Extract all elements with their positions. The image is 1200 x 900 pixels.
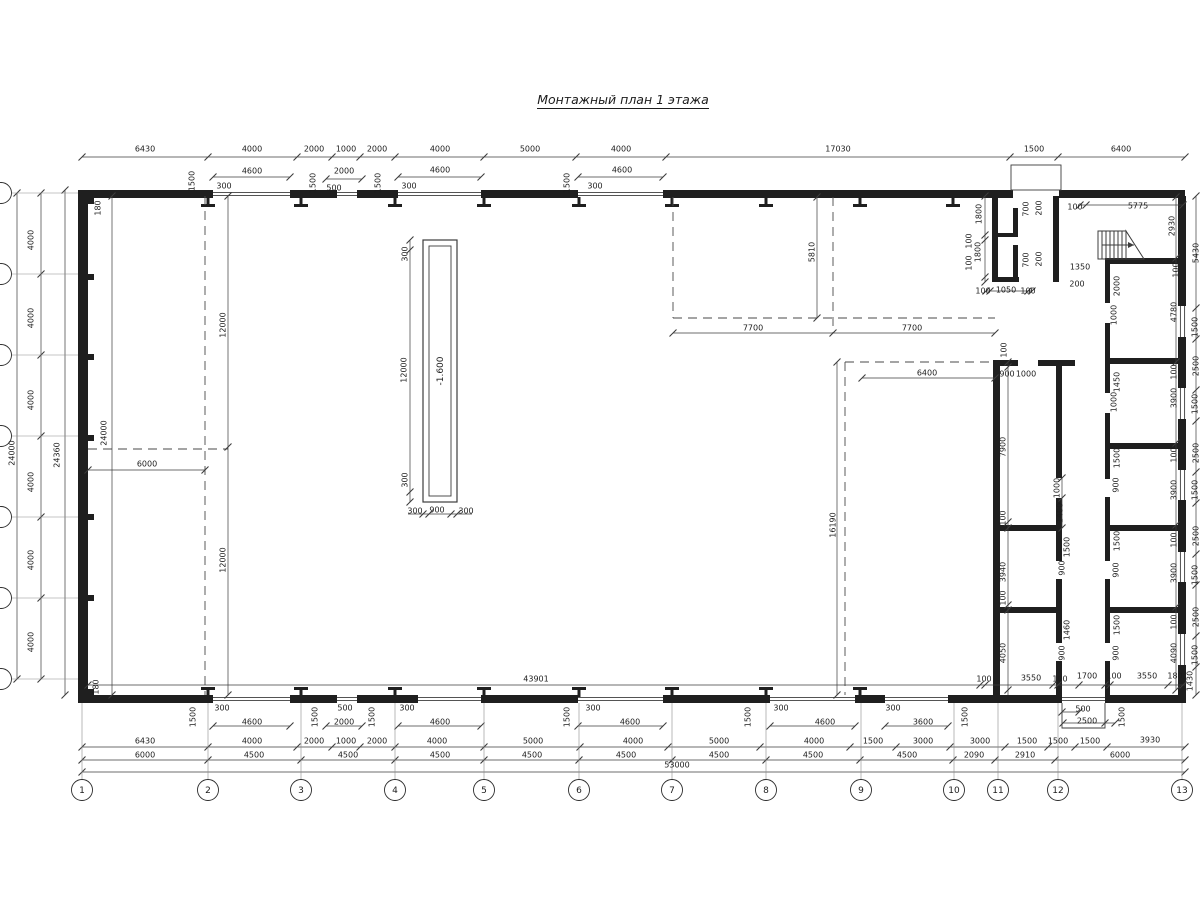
dim-label: 900 — [999, 370, 1014, 379]
drawing-sheet: Монтажный план 1 этажа -1.60012345678910… — [0, 0, 1200, 900]
dim-label: 1500 — [1113, 615, 1122, 635]
column-mark — [765, 688, 768, 697]
dim-label: 900 — [1058, 560, 1067, 575]
walls-layer — [78, 190, 1186, 703]
grid-bubble — [0, 588, 12, 609]
column-mark — [207, 688, 210, 697]
dim-label: 1500 — [1191, 480, 1200, 500]
dim-label: 700 — [1022, 201, 1031, 216]
dim-label: 2000 — [334, 718, 354, 727]
dim-label: 3550 — [1021, 674, 1041, 683]
wall-segment — [1013, 208, 1018, 235]
dim-label: 100 — [1170, 532, 1179, 547]
dim-label: 24000 — [100, 420, 109, 445]
pilaster-mark — [88, 435, 94, 441]
wall-segment — [82, 695, 213, 703]
dim-label: 500 — [1075, 705, 1090, 714]
dim-label: 1460 — [1063, 620, 1072, 640]
dim-label: 100 — [1170, 614, 1179, 629]
dim-label: 43901 — [523, 675, 548, 684]
dim-label: 6400 — [917, 369, 937, 378]
wall-segment — [481, 695, 578, 703]
dim-label: 300 — [773, 704, 788, 713]
windows-layer — [213, 165, 1185, 728]
dim-label: 4600 — [612, 166, 632, 175]
dim-label: 2000 — [367, 145, 387, 154]
dim-label: 1000 — [1110, 305, 1119, 325]
dim-label: 2910 — [1015, 751, 1035, 760]
column-mark — [671, 688, 674, 697]
grid-bubble-label: 13 — [1176, 786, 1187, 796]
dim-label: 1350 — [1070, 263, 1090, 272]
wall-segment — [992, 277, 1019, 282]
dim-label: 100 — [1106, 672, 1121, 681]
column-mark — [294, 204, 308, 207]
dim-label: 17030 — [825, 145, 850, 154]
dim-label: 500 — [337, 704, 352, 713]
dim-label: 100 — [975, 287, 990, 296]
dim-label: 4000 — [27, 308, 36, 328]
grid-bubble — [0, 345, 12, 366]
dim-label: 100 — [1067, 203, 1082, 212]
dim-label: 12000 — [400, 357, 409, 382]
dim-label: 6400 — [1111, 145, 1131, 154]
dim-label: 4000 — [27, 632, 36, 652]
floor-plan-canvas: -1.6001234567891011121364304000200010002… — [0, 0, 1200, 900]
dim-label: 4500 — [616, 751, 636, 760]
dim-label: 3900 — [1170, 563, 1179, 583]
dim-label: 4000 — [242, 737, 262, 746]
dim-label: 3000 — [970, 737, 990, 746]
dim-label: 1500 — [563, 173, 572, 193]
dim-label: 1500 — [1080, 737, 1100, 746]
dim-label: 1500 — [1113, 448, 1122, 468]
grid-bubble-label: 11 — [992, 786, 1003, 796]
dim-label: 5000 — [523, 737, 543, 746]
dim-label: 1500 — [311, 707, 320, 727]
wall-segment — [1105, 262, 1110, 303]
wall-segment — [1053, 196, 1059, 282]
dim-label: 900 — [429, 506, 444, 515]
dim-label: 1800 — [974, 242, 983, 262]
dim-label: 200 — [1035, 200, 1044, 215]
dim-label: 1500 — [563, 707, 572, 727]
dim-label: 300 — [401, 246, 410, 261]
dim-label: 4500 — [522, 751, 542, 760]
dim-label: 3940 — [999, 562, 1008, 582]
dim-label: 4000 — [27, 390, 36, 410]
dim-label: 4600 — [430, 718, 450, 727]
stairs-icon — [1098, 231, 1144, 259]
dim-label: 7700 — [902, 324, 922, 333]
column-mark — [572, 204, 586, 207]
dim-label: 700 — [1022, 252, 1031, 267]
dim-label: 2500 — [1192, 607, 1200, 627]
dim-label: 1500 — [1017, 737, 1037, 746]
dim-label: 16190 — [829, 512, 838, 537]
dim-label: 1500 — [1113, 531, 1122, 551]
dim-label: 1050 — [996, 286, 1016, 295]
dim-label: 3600 — [913, 718, 933, 727]
dim-label: 5810 — [808, 242, 817, 262]
grid-bubble-label: 7 — [669, 786, 675, 796]
wall-segment — [1056, 360, 1062, 478]
dim-label: 4000 — [242, 145, 262, 154]
dim-label: 1500 — [374, 173, 383, 193]
dim-label: 2500 — [1192, 526, 1200, 546]
dim-label: 300 — [407, 507, 422, 516]
wall-segment — [948, 695, 1062, 703]
dim-label: 4000 — [27, 472, 36, 492]
pilaster-mark — [88, 595, 94, 601]
dim-label: 900 — [1058, 645, 1067, 660]
column-mark — [483, 688, 486, 697]
dim-label: 2930 — [1168, 216, 1177, 236]
dimension-lines-layer — [17, 157, 1196, 772]
dim-label: 5430 — [1192, 243, 1200, 263]
dim-label: 100 — [1052, 675, 1067, 684]
dim-label: 2000 — [304, 145, 324, 154]
wall-segment — [1105, 358, 1183, 364]
dim-label: 7700 — [743, 324, 763, 333]
column-mark — [300, 688, 303, 697]
grid-bubble-label: 1 — [79, 786, 85, 796]
dim-label: 1450 — [1113, 372, 1122, 392]
dim-label: 2500 — [1192, 443, 1200, 463]
dim-label: 24000 — [8, 440, 17, 465]
wall-segment — [1013, 245, 1018, 277]
dim-label: 1500 — [1048, 737, 1068, 746]
roof-protrusion — [1011, 165, 1061, 190]
dim-label: 12000 — [219, 547, 228, 572]
dim-label: 4780 — [1170, 302, 1179, 322]
dashed-lines-layer — [88, 196, 995, 695]
dim-label: 1500 — [309, 173, 318, 193]
dim-label: 4000 — [27, 550, 36, 570]
dim-label: 4500 — [803, 751, 823, 760]
wall-segment — [1105, 607, 1183, 613]
dim-label: 180 — [1167, 672, 1182, 681]
dim-label: 100 — [1170, 447, 1179, 462]
wall-segment — [1056, 579, 1062, 643]
dim-label: 1000 — [336, 145, 356, 154]
grid-bubble-label: 5 — [481, 786, 487, 796]
dim-label: 24360 — [53, 442, 62, 467]
grid-bubble-label: 12 — [1052, 786, 1063, 796]
dim-label: 4090 — [1170, 643, 1179, 663]
dim-label: 1400 — [1056, 503, 1065, 523]
dim-label: 300 — [216, 182, 231, 191]
dim-label: 3930 — [1140, 736, 1160, 745]
dim-label: 1700 — [1077, 672, 1097, 681]
dim-label: 3550 — [1137, 672, 1157, 681]
grid-bubble-label: 4 — [392, 786, 398, 796]
dim-label: 180 — [92, 679, 101, 694]
grid-bubble — [0, 507, 12, 528]
wall-segment — [1105, 525, 1183, 531]
dim-label: 200 — [1035, 251, 1044, 266]
dim-label: 2000 — [334, 167, 354, 176]
grid-bubble — [0, 264, 12, 285]
pilaster-mark — [88, 274, 94, 280]
dim-label: 300 — [399, 704, 414, 713]
dim-label: 1500 — [189, 707, 198, 727]
dim-label: 4050 — [999, 643, 1008, 663]
dim-label: 200 — [1069, 280, 1084, 289]
dim-label: 1500 — [188, 171, 197, 191]
dim-label: 100 — [1000, 342, 1009, 357]
dim-label: 100 — [1170, 364, 1179, 379]
wall-segment — [993, 607, 1062, 613]
column-mark — [394, 688, 397, 697]
wall-segment — [1105, 695, 1185, 703]
wall-segment — [663, 695, 770, 703]
dim-label: 4500 — [430, 751, 450, 760]
dim-label: 7900 — [999, 437, 1008, 457]
dim-label: 6000 — [1110, 751, 1130, 760]
dim-label: 2500 — [1077, 717, 1097, 726]
dim-label: 1000 — [1053, 478, 1062, 498]
dim-label: 300 — [585, 704, 600, 713]
column-mark — [578, 688, 581, 697]
dim-label: 1500 — [1024, 145, 1044, 154]
column-mark — [859, 688, 862, 697]
pilaster-mark — [88, 514, 94, 520]
dim-label: 4000 — [430, 145, 450, 154]
dim-label: 1430 — [1186, 671, 1195, 691]
dim-label: 300 — [885, 704, 900, 713]
dim-label: 6000 — [135, 751, 155, 760]
dim-label: 1800 — [975, 204, 984, 224]
dim-label: 4000 — [804, 737, 824, 746]
column-mark — [388, 204, 402, 207]
grid-bubble-label: 2 — [205, 786, 211, 796]
dim-label: 3000 — [913, 737, 933, 746]
dim-label: 4000 — [27, 230, 36, 250]
wall-segment — [1178, 196, 1186, 306]
dim-label: 1000 — [1110, 392, 1119, 412]
column-mark — [853, 204, 867, 207]
dim-label: 1000 — [336, 737, 356, 746]
column-mark — [946, 204, 960, 207]
dim-label: 2500 — [1192, 356, 1200, 376]
dim-label: 1500 — [1191, 317, 1200, 337]
dim-label: 300 — [458, 507, 473, 516]
dim-label: 300 — [214, 704, 229, 713]
dim-label: 500 — [326, 184, 341, 193]
dim-label: 1500 — [368, 707, 377, 727]
dim-label: 180 — [94, 200, 103, 215]
dim-label: 2000 — [1113, 276, 1122, 296]
grid-bubble-label: 8 — [763, 786, 769, 796]
dim-label: 900 — [1112, 645, 1121, 660]
dim-label: 1500 — [1118, 707, 1127, 727]
grid-bubble-label: 3 — [298, 786, 304, 796]
dim-label: 4500 — [244, 751, 264, 760]
dim-label: 5000 — [709, 737, 729, 746]
grid-bubble-label: 6 — [576, 786, 582, 796]
dim-label: 1500 — [1191, 394, 1200, 414]
dim-label: 2000 — [367, 737, 387, 746]
dim-label: 1500 — [961, 707, 970, 727]
dim-label: 4600 — [815, 718, 835, 727]
wall-segment — [663, 190, 1013, 198]
dim-label: 1500 — [1191, 565, 1200, 585]
dim-label: 100 — [1020, 287, 1035, 296]
dim-label: 100 — [999, 590, 1008, 605]
dim-label: 53000 — [664, 761, 689, 770]
dim-label: 100 — [965, 255, 974, 270]
grid-bubble-label: 9 — [858, 786, 864, 796]
dim-label: 300 — [401, 472, 410, 487]
dim-label: 1500 — [863, 737, 883, 746]
dim-label: 100 — [976, 675, 991, 684]
dim-label: 900 — [1112, 562, 1121, 577]
dim-label: 3900 — [1170, 388, 1179, 408]
column-mark — [665, 204, 679, 207]
dim-label: 4600 — [620, 718, 640, 727]
dim-label: 300 — [587, 182, 602, 191]
dim-label: 3900 — [1170, 480, 1179, 500]
dim-label: 4600 — [242, 718, 262, 727]
dim-label: 6430 — [135, 737, 155, 746]
dim-label: 4600 — [242, 167, 262, 176]
wall-segment — [357, 695, 418, 703]
dim-label: 4000 — [623, 737, 643, 746]
grid-bubble — [0, 669, 12, 690]
pit-depth-label: -1.600 — [436, 356, 446, 385]
dim-label: 6430 — [135, 145, 155, 154]
dim-label: 2090 — [964, 751, 984, 760]
wall-segment — [78, 196, 88, 703]
dim-label: 5000 — [520, 145, 540, 154]
dim-label: 4600 — [430, 166, 450, 175]
dim-label: 6000 — [137, 460, 157, 469]
dim-label: 4000 — [611, 145, 631, 154]
pilaster-mark — [88, 354, 94, 360]
dim-label: 1500 — [1063, 537, 1072, 557]
dim-label: 1500 — [1191, 645, 1200, 665]
wall-segment — [1059, 190, 1185, 198]
grid-bubble-label: 10 — [948, 786, 960, 796]
dim-label: 1500 — [744, 707, 753, 727]
wall-segment — [992, 196, 998, 282]
dim-label: 4000 — [427, 737, 447, 746]
dim-label: 100 — [965, 233, 974, 248]
dim-label: 4500 — [897, 751, 917, 760]
dim-label: 12000 — [219, 312, 228, 337]
column-mark — [477, 204, 491, 207]
dim-label: 900 — [1112, 477, 1121, 492]
grid-bubble — [0, 183, 12, 204]
dim-label: 4500 — [338, 751, 358, 760]
column-mark — [201, 204, 215, 207]
dim-label: 100 — [999, 510, 1008, 525]
column-mark — [759, 204, 773, 207]
dim-label: 4500 — [709, 751, 729, 760]
dim-label: 300 — [401, 182, 416, 191]
wall-segment — [290, 695, 337, 703]
dim-label: 5775 — [1128, 202, 1148, 211]
dim-label: 100 — [1172, 262, 1181, 277]
dim-label: 2000 — [304, 737, 324, 746]
dim-label: 1000 — [1016, 370, 1036, 379]
